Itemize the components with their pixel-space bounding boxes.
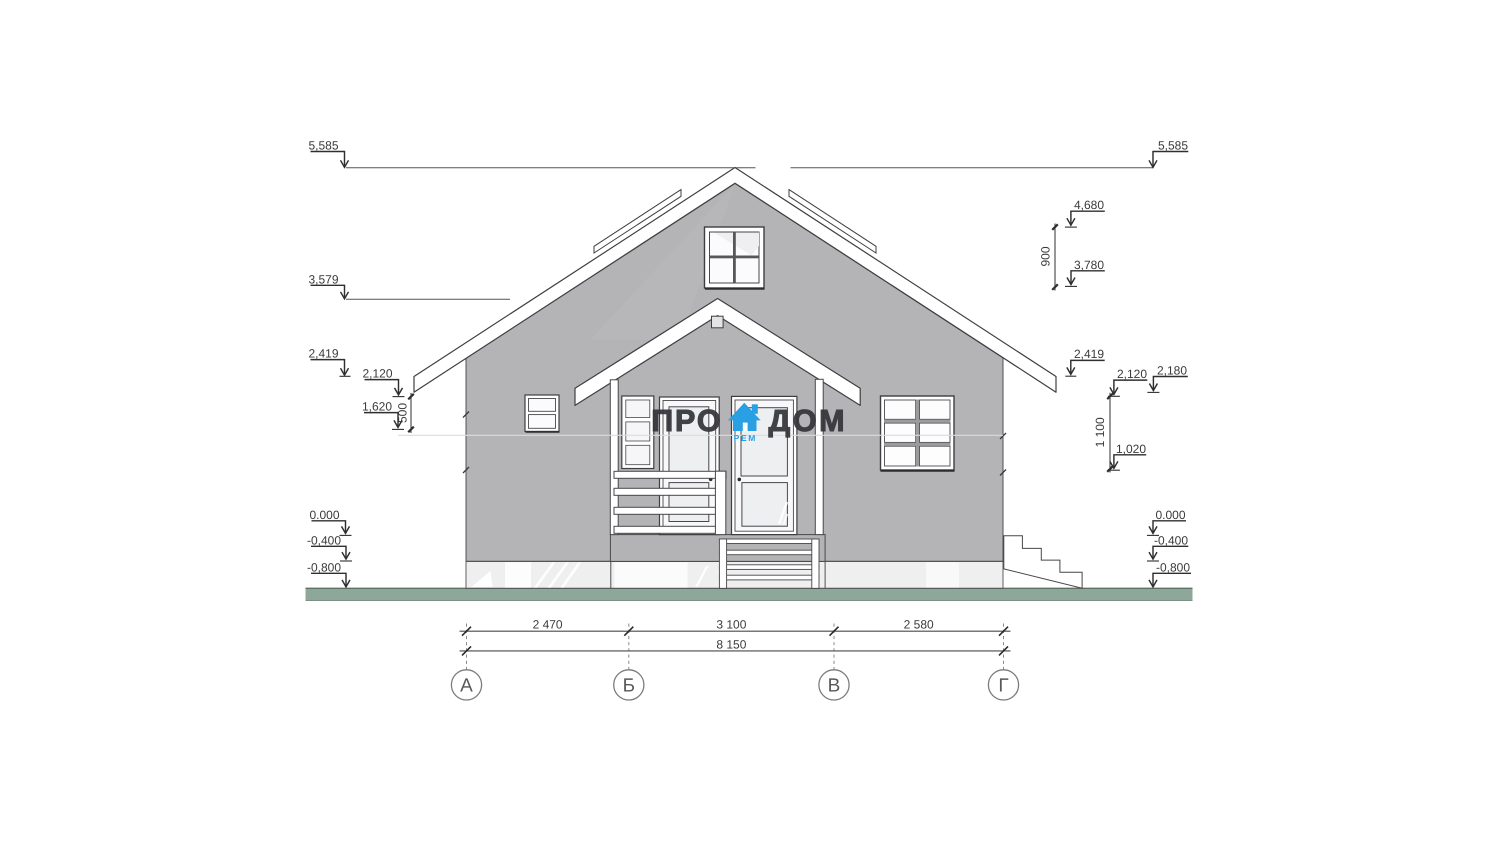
svg-text:Г: Г	[998, 676, 1008, 697]
svg-text:-0,400: -0,400	[307, 533, 341, 547]
svg-text:2,120: 2,120	[362, 367, 392, 381]
svg-text:5,585: 5,585	[308, 139, 338, 153]
svg-text:-0,800: -0,800	[1156, 560, 1190, 574]
svg-text:8 150: 8 150	[716, 637, 746, 651]
svg-text:3,579: 3,579	[308, 272, 338, 286]
svg-text:1 100: 1 100	[1093, 417, 1107, 447]
svg-text:2 470: 2 470	[533, 618, 563, 632]
svg-text:2,120: 2,120	[1117, 367, 1147, 381]
svg-text:РЕМ: РЕМ	[734, 433, 757, 443]
svg-text:0.000: 0.000	[309, 508, 339, 522]
svg-text:900: 900	[1039, 246, 1053, 266]
svg-text:1,620: 1,620	[362, 400, 392, 414]
svg-text:3,780: 3,780	[1074, 258, 1104, 272]
svg-text:500: 500	[396, 403, 410, 423]
svg-text:4,680: 4,680	[1074, 198, 1104, 212]
svg-text:5,585: 5,585	[1158, 139, 1188, 153]
svg-text:3 100: 3 100	[716, 618, 746, 632]
svg-text:-0,400: -0,400	[1154, 533, 1188, 547]
svg-text:В: В	[828, 676, 841, 697]
svg-text:ПРО: ПРО	[651, 404, 722, 438]
svg-text:2 580: 2 580	[904, 618, 934, 632]
svg-text:2,419: 2,419	[1074, 347, 1104, 361]
svg-text:Б: Б	[623, 676, 635, 697]
svg-text:1,020: 1,020	[1116, 442, 1146, 456]
svg-text:А: А	[460, 676, 473, 697]
svg-text:ДОМ: ДОМ	[769, 404, 848, 438]
svg-text:0.000: 0.000	[1155, 508, 1185, 522]
svg-text:-0,800: -0,800	[307, 560, 341, 574]
svg-text:2,419: 2,419	[308, 347, 338, 361]
svg-text:2,180: 2,180	[1157, 364, 1187, 378]
